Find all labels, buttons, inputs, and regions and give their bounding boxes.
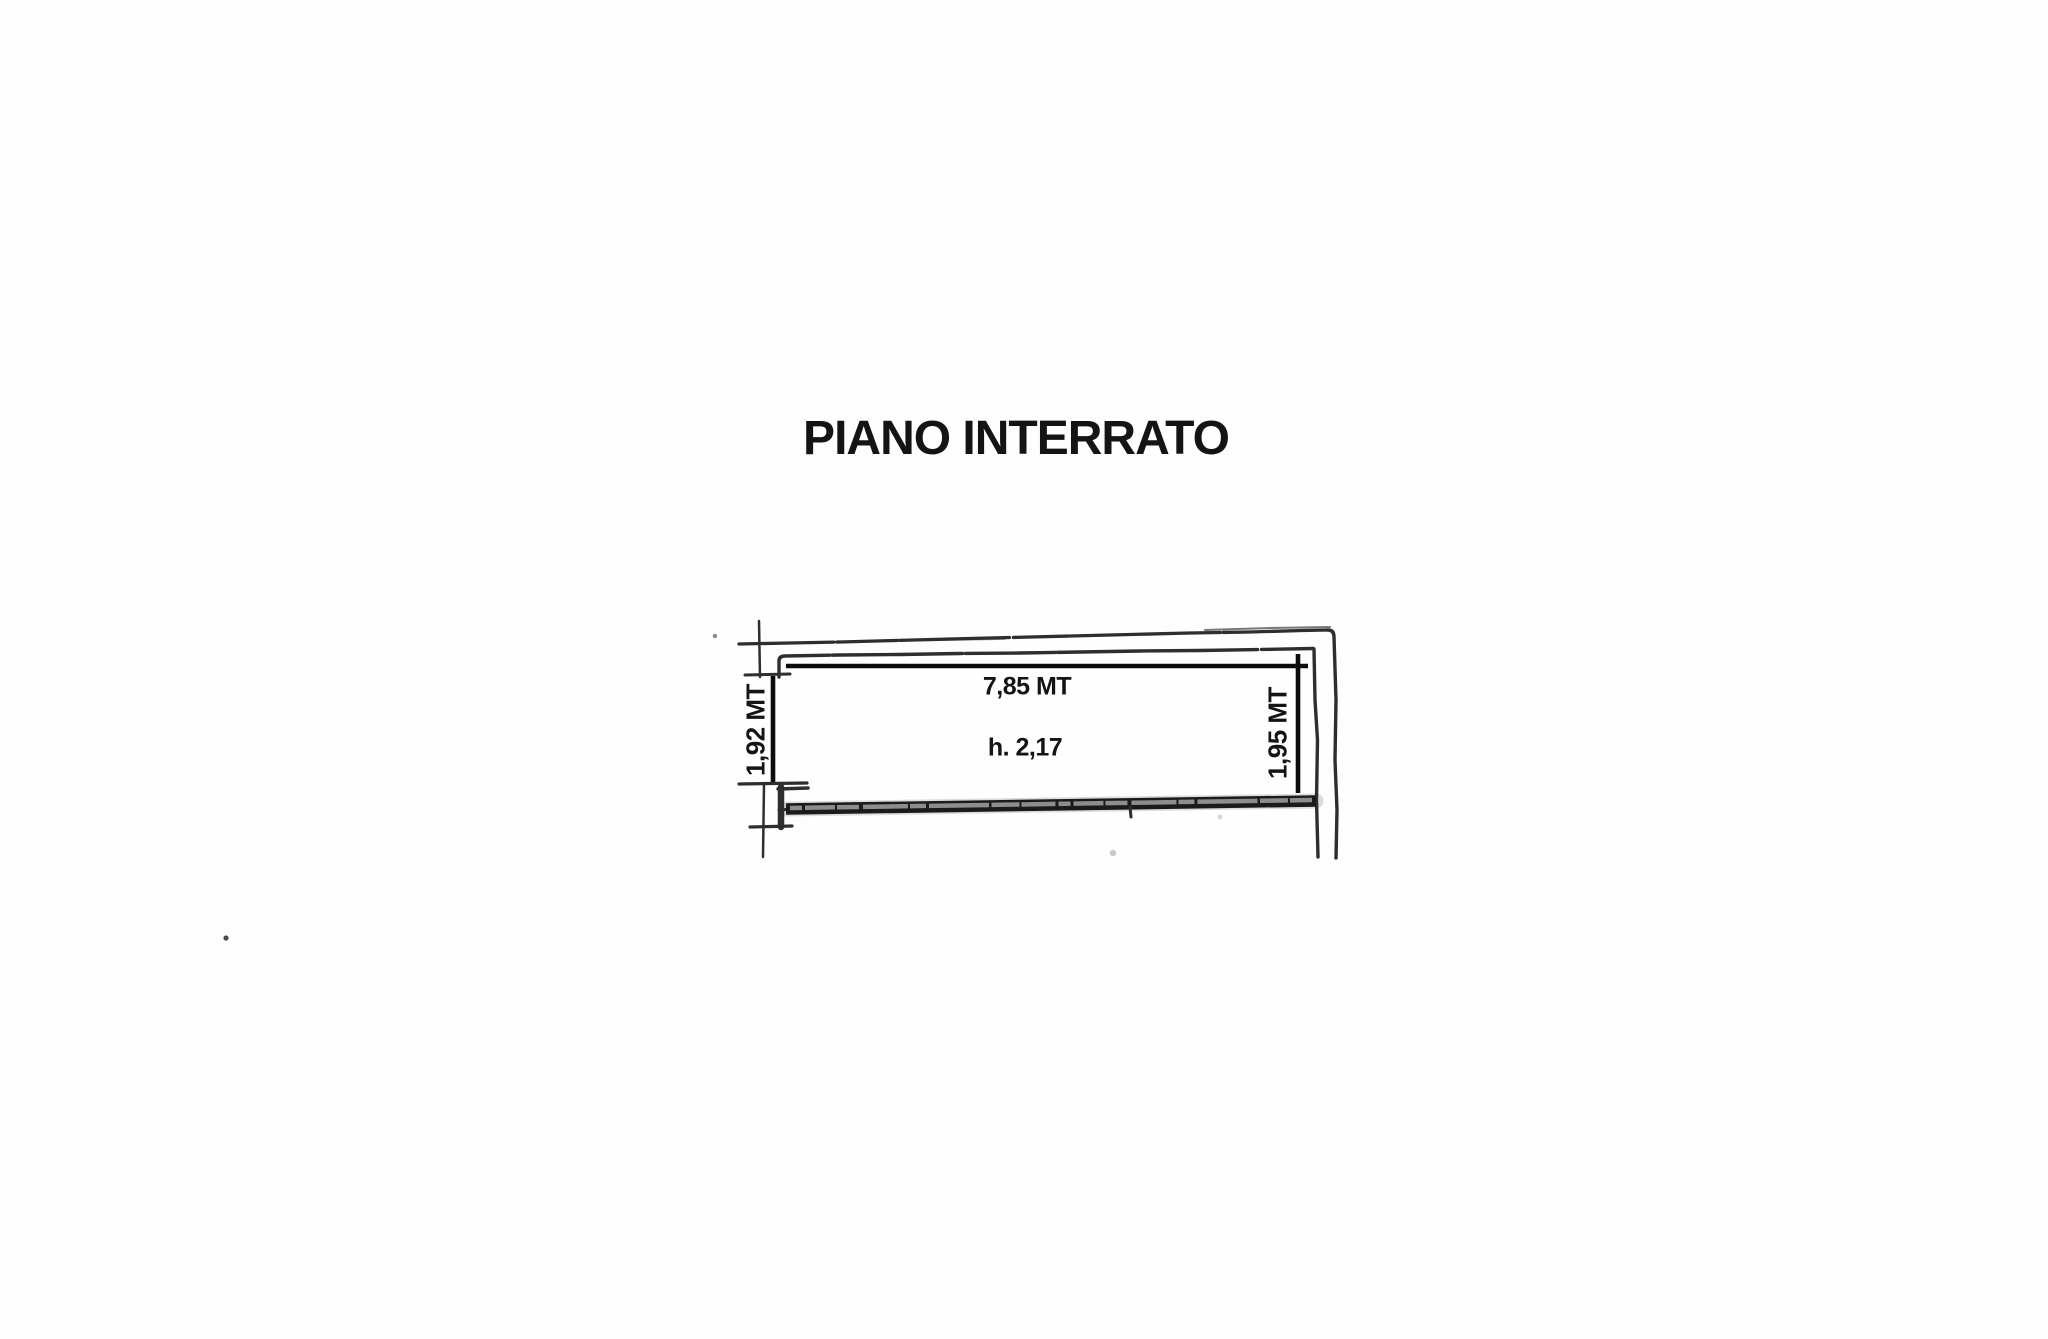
ceiling-height-label: h. 2,17 [988, 734, 1062, 763]
tick-middle [739, 783, 807, 784]
wall-bottom-halo [787, 801, 1316, 809]
wall-outer-top-echo [885, 639, 1005, 641]
extension-line-top [759, 621, 760, 677]
scan-speck [1218, 815, 1223, 820]
wall-end-jamb [778, 787, 808, 827]
jamb-stub-top [778, 788, 808, 789]
jamb-stub-bottom [779, 809, 793, 810]
wall-bottom-core [786, 801, 1316, 809]
scan-speck [1110, 850, 1116, 856]
tick-top [745, 674, 790, 675]
floor-plan-drawing: 7,85 MT h. 2,17 1,92 MT 1,95 MT [0, 0, 2048, 1339]
scanned-floor-plan-page: PIANO INTERRATO [0, 0, 2048, 1339]
wall-outer-top-line [739, 630, 1328, 644]
wall-bottom [786, 800, 1316, 817]
tick-bottom [750, 826, 792, 827]
scan-speck [713, 634, 717, 638]
extension-line-bottom [763, 784, 764, 857]
wall-outer-top-echo [1205, 627, 1330, 630]
dimension-label-width: 7,85 MT [983, 673, 1071, 702]
wall-bottom-nub [1130, 807, 1131, 817]
floor-plan-linework [0, 0, 2048, 1339]
wall-inner-right-line [1314, 649, 1318, 857]
dimension-label-right-depth: 1,95 MT [1263, 687, 1294, 779]
wall-bottom-texture [790, 800, 1312, 808]
wall-outer-right-line [1328, 630, 1337, 858]
scan-speck [223, 935, 228, 940]
dimension-label-left-depth: 1,92 MT [741, 684, 772, 776]
